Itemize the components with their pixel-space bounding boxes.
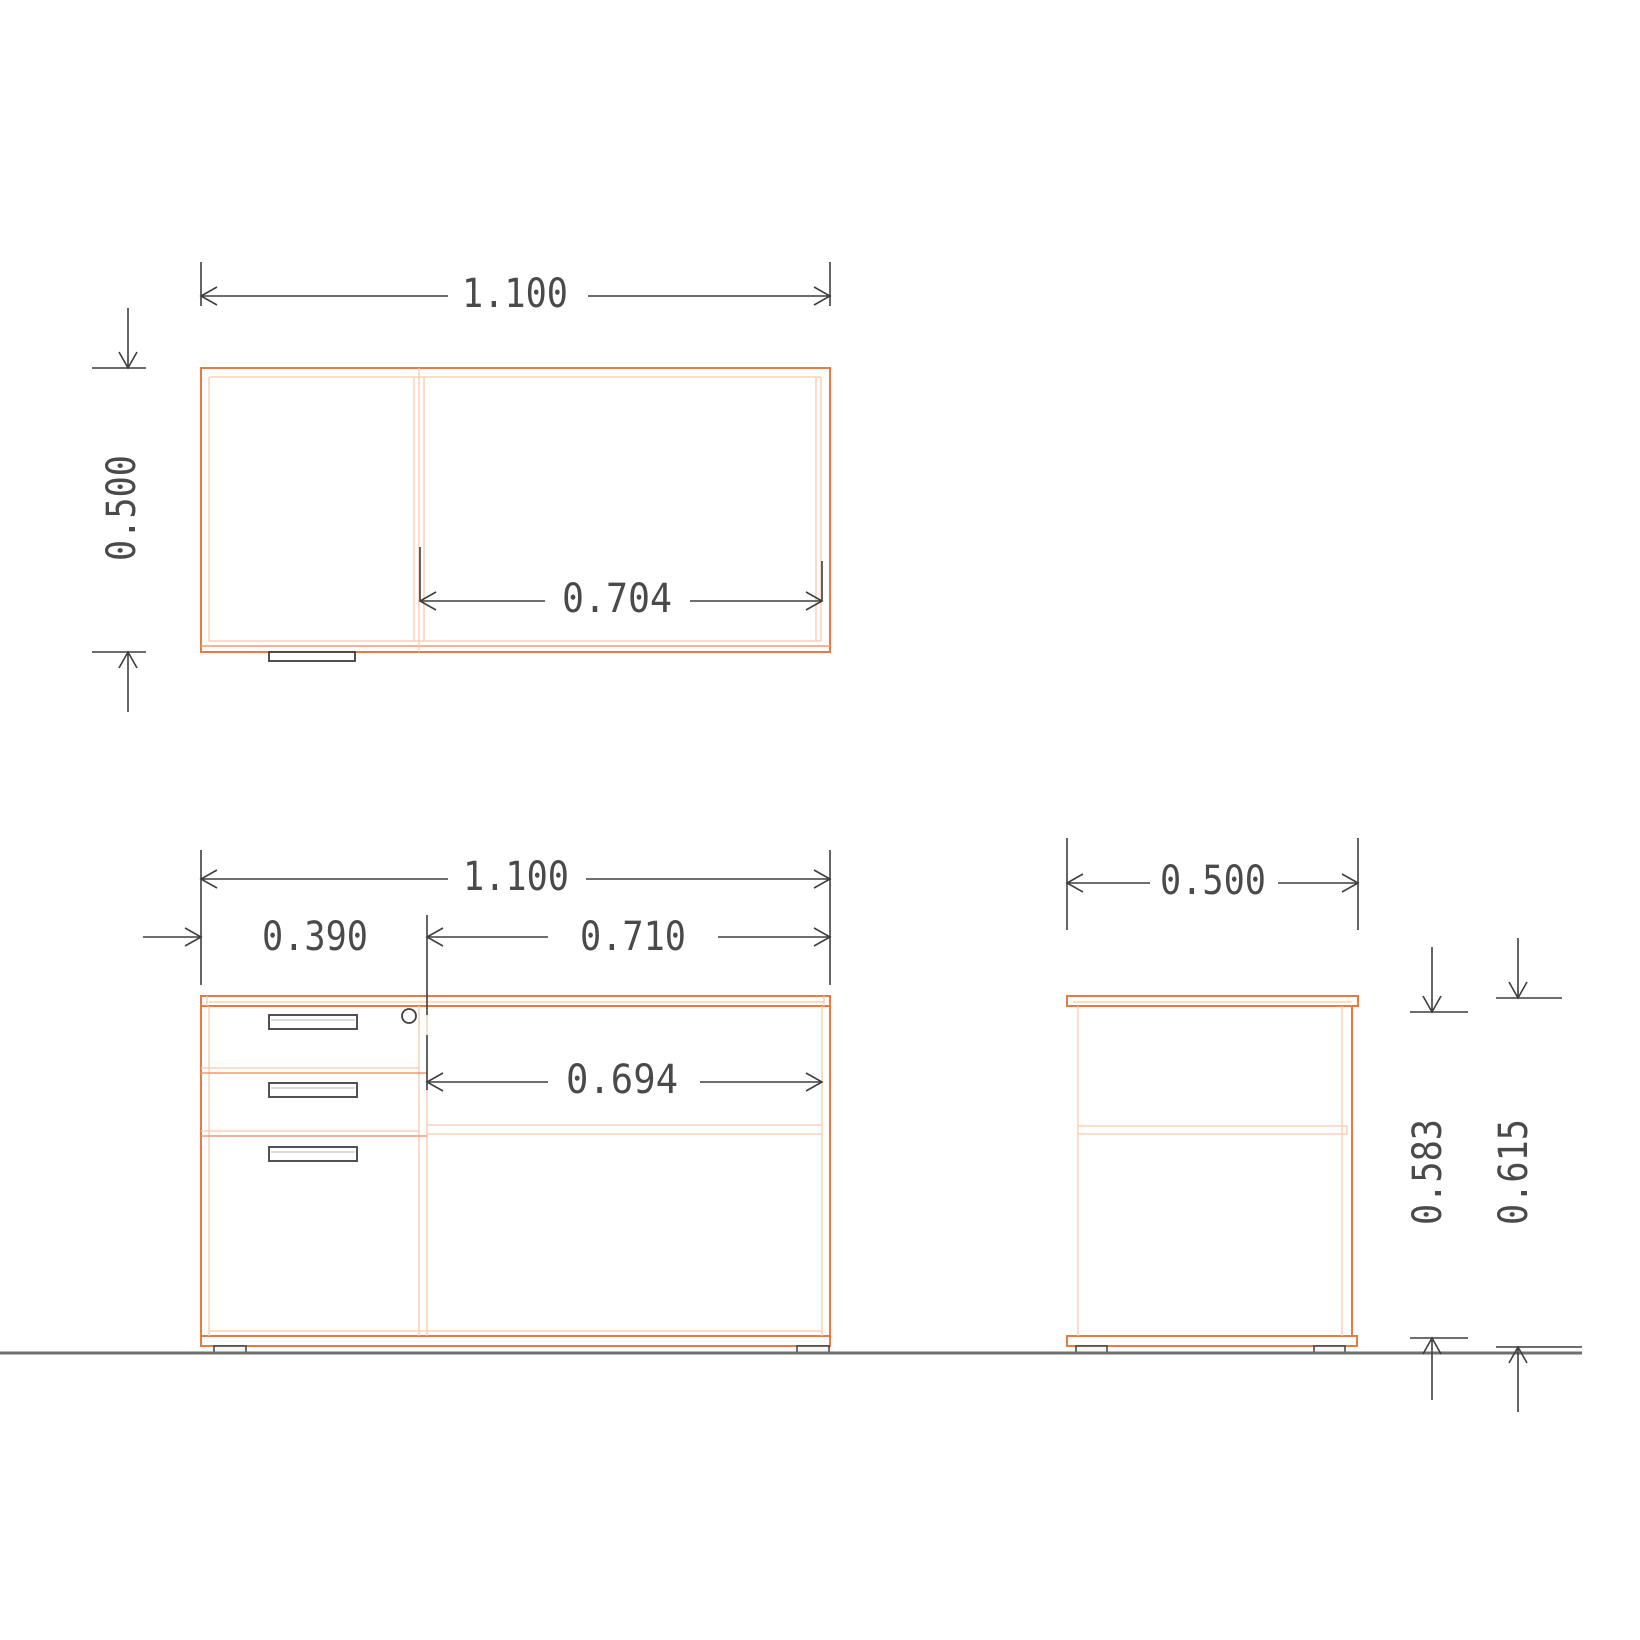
side-view — [1067, 996, 1358, 1353]
front-view — [201, 996, 830, 1353]
cad-drawing-canvas: 1.100 0.500 0.704 1.100 0.390 0.710 0.69… — [0, 0, 1640, 1640]
drawer-handle-middle — [269, 1083, 357, 1097]
top-view-outline — [201, 368, 830, 652]
dim-lines — [143, 915, 830, 1015]
dim-label-front-inner-width: 0.694 — [566, 1057, 678, 1103]
dim-side-overall-height: 0.615 — [1491, 938, 1582, 1412]
top-view-drawer-handle — [269, 652, 355, 661]
top-view-inner-lines — [209, 368, 821, 652]
drawer-handle-bottom — [269, 1147, 357, 1161]
dim-front-view-pedestal-and-opening: 0.390 0.710 — [143, 914, 830, 1015]
cabinet-technical-drawing: 1.100 0.500 0.704 1.100 0.390 0.710 0.69… — [0, 0, 1640, 1640]
dim-label-top-opening: 0.704 — [562, 576, 672, 622]
dim-top-view-opening: 0.704 — [420, 547, 822, 622]
dim-label-front-width: 1.100 — [463, 854, 569, 900]
dim-side-view-depth: 0.500 — [1067, 838, 1358, 930]
front-view-outline — [201, 996, 830, 1346]
drawer-handle-top — [269, 1015, 357, 1029]
dim-front-view-inner-width: 0.694 — [427, 1035, 822, 1103]
dim-label-front-pedestal-width: 0.390 — [262, 914, 368, 960]
dim-label-side-overall-height: 0.615 — [1491, 1119, 1537, 1225]
dim-label-front-opening-width: 0.710 — [580, 914, 686, 960]
dim-label-side-depth: 0.500 — [1160, 858, 1266, 904]
top-view — [201, 368, 830, 661]
dim-top-view-width: 1.100 — [201, 262, 830, 317]
side-view-plinth — [1067, 1006, 1357, 1346]
dim-label-top-depth: 0.500 — [99, 455, 145, 561]
dim-top-view-depth: 0.500 — [92, 308, 146, 712]
lock-cylinder-icon — [402, 1009, 416, 1023]
side-view-inner-lines — [1073, 1002, 1352, 1336]
front-view-inner-lines — [201, 996, 824, 1336]
dim-side-carcass-height: 0.583 — [1405, 947, 1468, 1400]
side-view-worktop — [1067, 996, 1358, 1006]
dim-label-top-width: 1.100 — [462, 271, 568, 317]
dim-label-side-carcass-height: 0.583 — [1405, 1119, 1451, 1225]
